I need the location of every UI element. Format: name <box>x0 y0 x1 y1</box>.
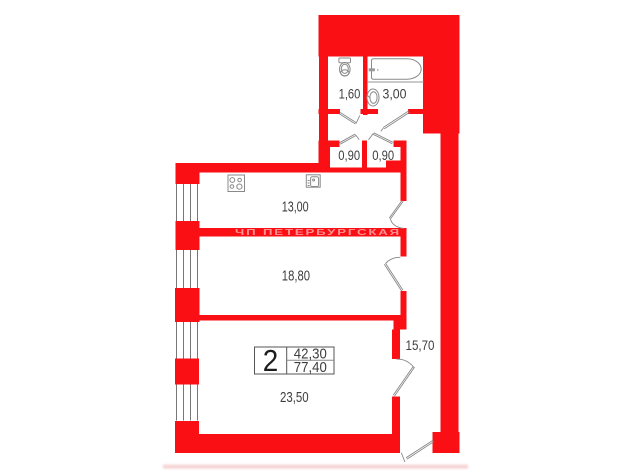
svg-text:ЧП ПЕТЕРБУРГСКАЯ: ЧП ПЕТЕРБУРГСКАЯ <box>235 227 401 237</box>
svg-text:0,90: 0,90 <box>372 148 394 163</box>
svg-text:2: 2 <box>263 343 279 378</box>
svg-text:1,60: 1,60 <box>339 87 361 102</box>
svg-text:13,00: 13,00 <box>282 200 309 216</box>
svg-text:15,70: 15,70 <box>406 337 435 353</box>
svg-text:77,40: 77,40 <box>294 359 327 376</box>
svg-text:0,90: 0,90 <box>338 148 360 163</box>
svg-text:23,50: 23,50 <box>280 390 309 406</box>
svg-text:18,80: 18,80 <box>282 268 310 284</box>
svg-text:3,00: 3,00 <box>383 87 407 102</box>
